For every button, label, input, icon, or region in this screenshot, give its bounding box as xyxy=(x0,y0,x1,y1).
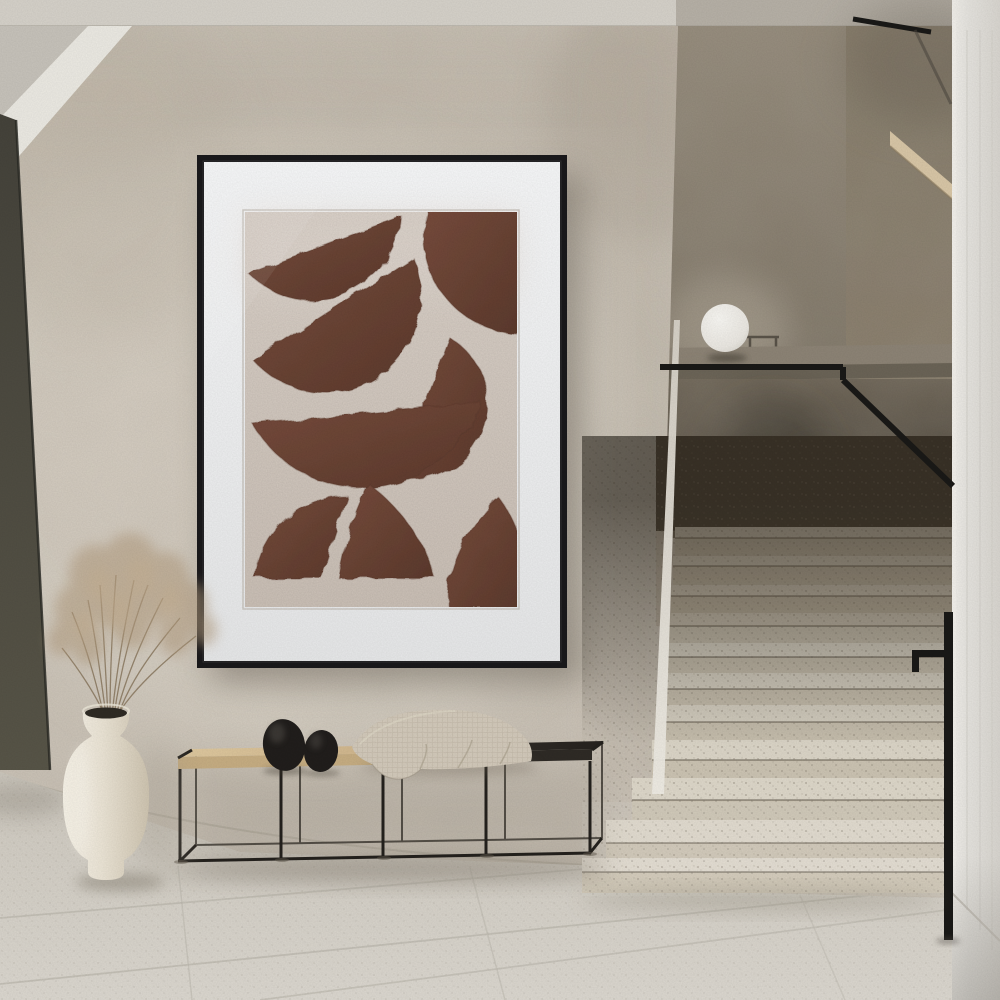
photo-grain-overlay xyxy=(0,0,1000,1000)
hallway-photo xyxy=(0,0,1000,1000)
scene-canvas xyxy=(0,0,1000,1000)
